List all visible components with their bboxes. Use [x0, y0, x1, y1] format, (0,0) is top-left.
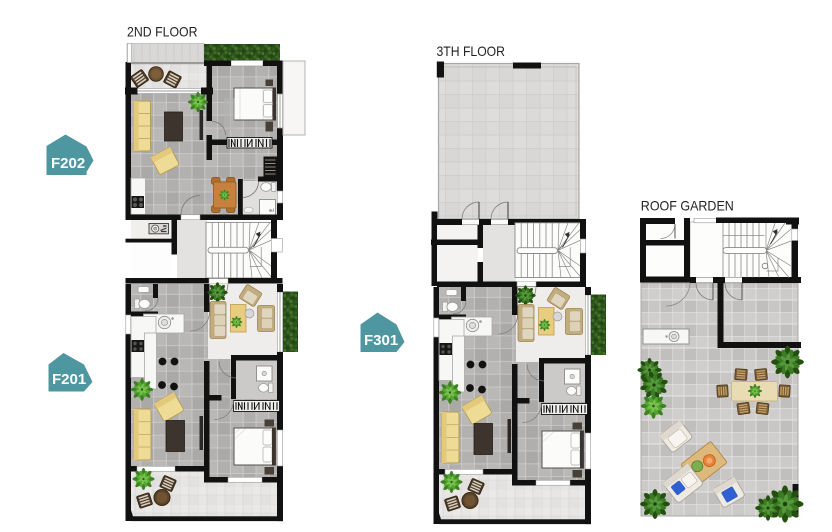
svg-text:3TH FLOOR: 3TH FLOOR	[437, 43, 506, 59]
svg-text:2ND FLOOR: 2ND FLOOR	[127, 23, 198, 39]
svg-text:F301: F301	[364, 332, 398, 349]
svg-text:F202: F202	[51, 155, 85, 172]
svg-text:F201: F201	[52, 371, 86, 388]
svg-text:ROOF GARDEN: ROOF GARDEN	[641, 198, 734, 214]
